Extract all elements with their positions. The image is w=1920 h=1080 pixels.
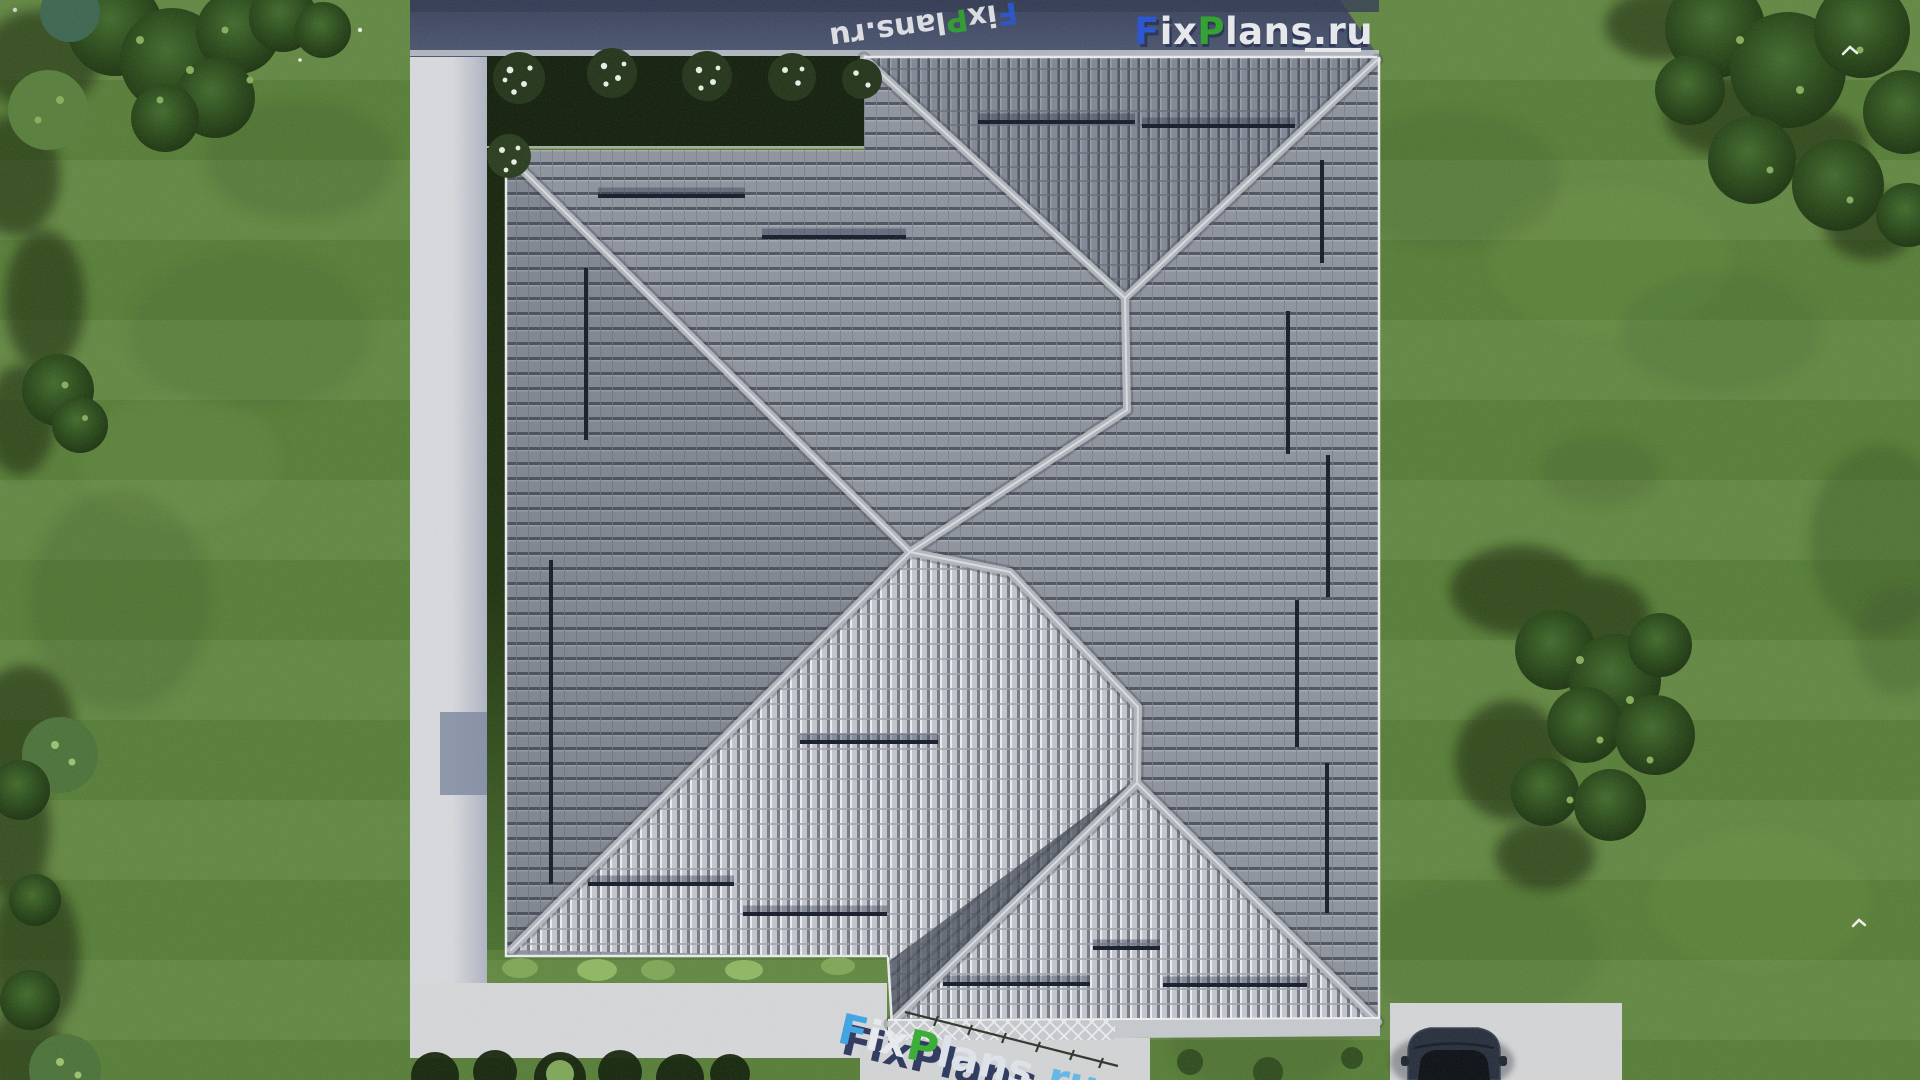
render-screenshot: FixPlans.ru FixPlans.ru FixPlans.ru FixP… — [0, 0, 1920, 1080]
scene: FixPlans.ru FixPlans.ru FixPlans.ru FixP… — [0, 0, 1920, 1080]
grain-overlay — [0, 0, 1920, 1080]
